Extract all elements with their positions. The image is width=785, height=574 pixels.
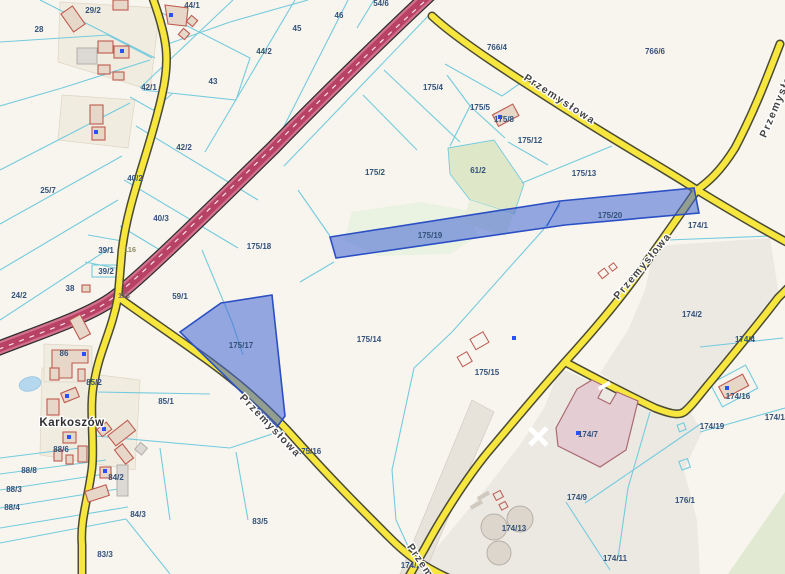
- parcel-label-175-8: 175/8: [494, 115, 515, 124]
- parcel-label-44-1: 44/1: [184, 1, 200, 10]
- parcel-label-42-2: 42/2: [176, 143, 192, 152]
- road-number-116: 116: [124, 245, 136, 254]
- parcel-label-40-2: 40/2: [127, 174, 143, 183]
- parcel-label-175-2: 175/2: [365, 168, 386, 177]
- parcel-label-25-7: 25/7: [40, 186, 56, 195]
- parcel-label-174-19: 174/19: [700, 422, 725, 431]
- parcel-label-174-7: 174/7: [578, 430, 599, 439]
- parcel-label-175-15: 175/15: [475, 368, 500, 377]
- place-label-karkosz-w: Karkoszów: [39, 417, 104, 429]
- parcel-label-766-4: 766/4: [487, 43, 508, 52]
- parcel-label-61-2: 61/2: [470, 166, 486, 175]
- parcel-label-88-8: 88/8: [21, 466, 37, 475]
- parcel-label-174-1: 174/1: [688, 221, 709, 230]
- parcel-label-175-4: 175/4: [423, 83, 444, 92]
- parcel-label-88-4: 88/4: [4, 503, 20, 512]
- parcel-label-85-2: 85/2: [86, 378, 102, 387]
- parcel-label-43: 43: [209, 77, 218, 86]
- parcel-label-24-2: 24/2: [11, 291, 27, 300]
- parcel-label-46: 46: [335, 11, 344, 20]
- parcel-label-28: 28: [35, 25, 44, 34]
- parcel-label-54-6: 54/6: [373, 0, 389, 8]
- parcel-label-59-1: 59/1: [172, 292, 188, 301]
- parcel-label-174-14: 174/14: [765, 413, 785, 422]
- parcel-label-175-18: 175/18: [247, 242, 272, 251]
- parcel-label-29-2: 29/2: [85, 6, 101, 15]
- parcel-label-174-4: 174/4: [735, 335, 756, 344]
- parcel-label-38: 38: [66, 284, 75, 293]
- parcel-label-175-5: 175/5: [470, 103, 491, 112]
- parcel-label-86: 86: [60, 349, 69, 358]
- parcel-label-174-9: 174/9: [567, 493, 588, 502]
- parcel-label-175-13: 175/13: [572, 169, 597, 178]
- parcel-label-44-2: 44/2: [256, 47, 272, 56]
- parcel-label-174-16: 174/16: [726, 392, 751, 401]
- parcel-label-175-17: 175/17: [229, 341, 254, 350]
- map-svg: 29/22844/1464544/24354/642/142/240/225/7…: [0, 0, 785, 574]
- parcel-label-174-13: 174/13: [502, 524, 527, 533]
- parcel-label-175-19: 175/19: [418, 231, 443, 240]
- parcel-label-39-1: 39/1: [98, 246, 114, 255]
- parcel-label-174-2: 174/2: [682, 310, 703, 319]
- parcel-label-83-3: 83/3: [97, 550, 113, 559]
- parcel-label-39-2: 39/2: [98, 267, 114, 276]
- parcel-label-42-1: 42/1: [141, 83, 157, 92]
- parcel-label-83-5: 83/5: [252, 517, 268, 526]
- parcel-label-174-11: 174/11: [603, 554, 628, 563]
- parcel-label-45: 45: [293, 24, 302, 33]
- parcel-label-176-1: 176/1: [675, 496, 696, 505]
- parcel-label-85-1: 85/1: [158, 397, 174, 406]
- parcel-label-766-6: 766/6: [645, 47, 666, 56]
- parcel-label-88-3: 88/3: [6, 485, 22, 494]
- place-name-labels: Karkoszów: [39, 417, 104, 429]
- map-canvas[interactable]: 29/22844/1464544/24354/642/142/240/225/7…: [0, 0, 785, 574]
- parcel-label-175-12: 175/12: [518, 136, 543, 145]
- parcel-label-40-3: 40/3: [153, 214, 169, 223]
- parcel-label-88-6: 88/6: [53, 445, 69, 454]
- road-number-113: 113: [118, 291, 130, 300]
- parcel-label-84-3: 84/3: [130, 510, 146, 519]
- parcel-label-175-20: 175/20: [598, 211, 623, 220]
- parcel-label-175-14: 175/14: [357, 335, 382, 344]
- parcel-label-84-2: 84/2: [108, 473, 124, 482]
